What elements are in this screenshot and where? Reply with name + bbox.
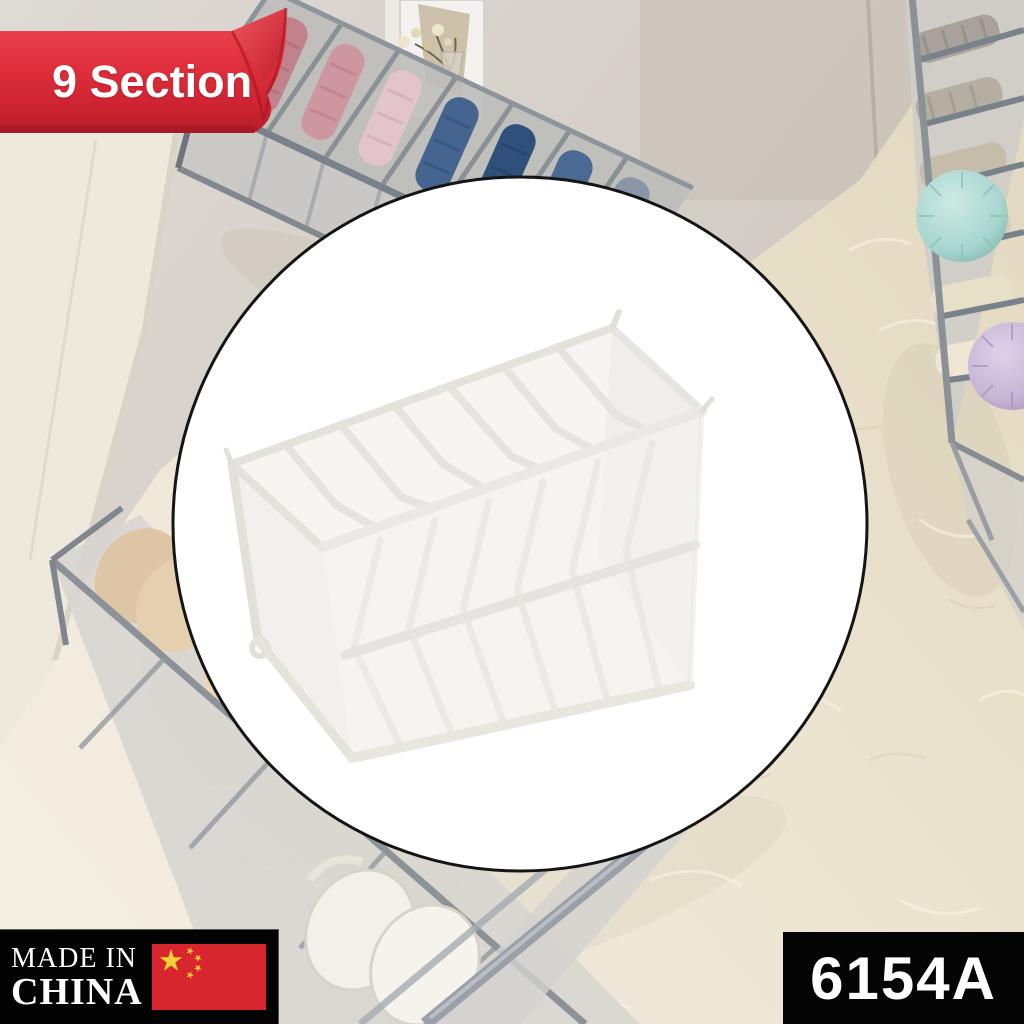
origin-badge: MADE IN CHINA xyxy=(0,930,278,1024)
sku-badge: 6154A xyxy=(783,932,1024,1024)
sku-label: 6154A xyxy=(810,944,997,1013)
origin-text: MADE IN CHINA xyxy=(11,944,143,1010)
background-photo xyxy=(0,0,1024,1024)
teal-pompom xyxy=(916,170,1008,262)
china-flag-icon xyxy=(152,944,266,1010)
section-ribbon: 9 Section xyxy=(0,0,310,150)
origin-line2: CHINA xyxy=(11,974,143,1010)
ribbon-label: 9 Section xyxy=(52,56,237,108)
product-image-card: 9 Section MADE IN CHINA 6154A xyxy=(0,0,1024,1024)
origin-line1: MADE IN xyxy=(11,944,143,974)
